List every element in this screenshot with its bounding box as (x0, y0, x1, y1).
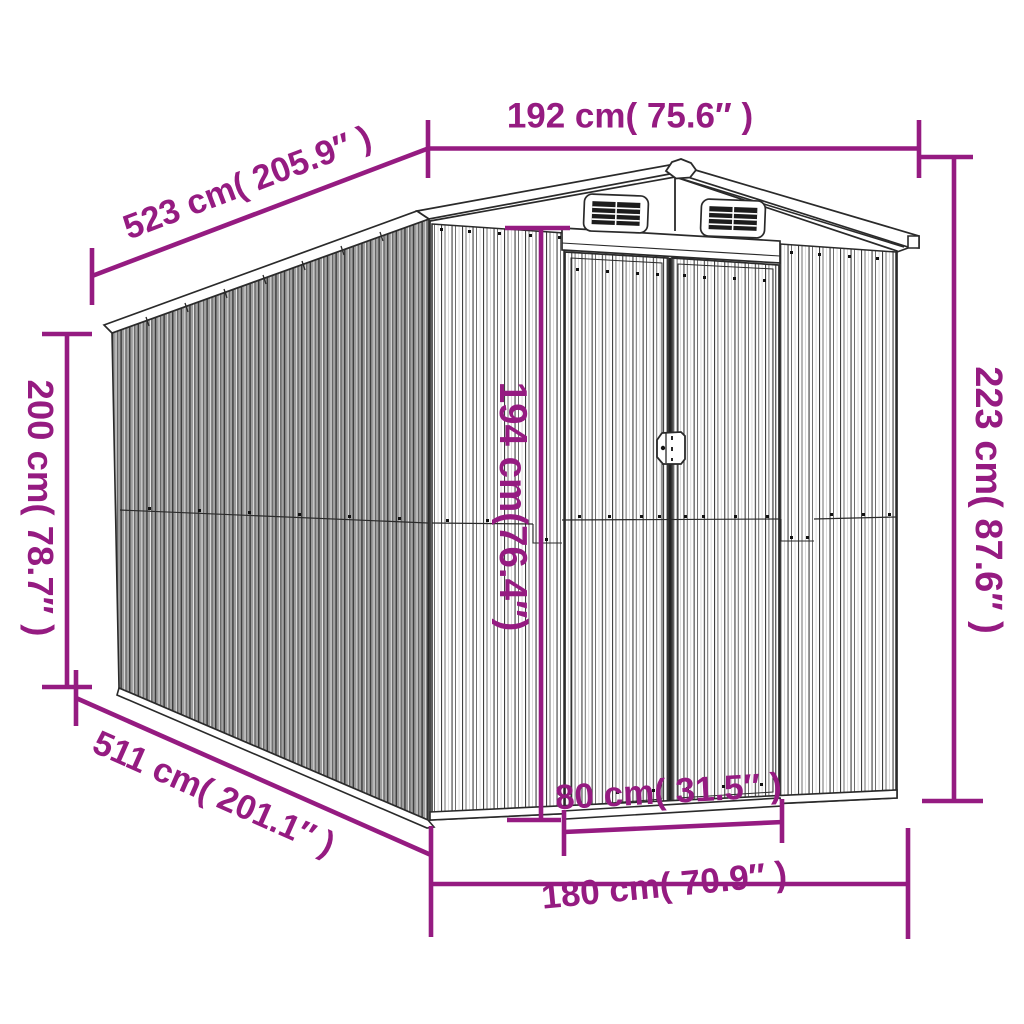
svg-text:192 cm( 75.6″ ): 192 cm( 75.6″ ) (507, 97, 753, 136)
svg-text:200 cm( 78.7″ ): 200 cm( 78.7″ ) (20, 380, 61, 637)
svg-text:223 cm( 87.6″ ): 223 cm( 87.6″ ) (967, 366, 1009, 633)
svg-text:194 cm(76.4″): 194 cm(76.4″) (491, 382, 534, 632)
